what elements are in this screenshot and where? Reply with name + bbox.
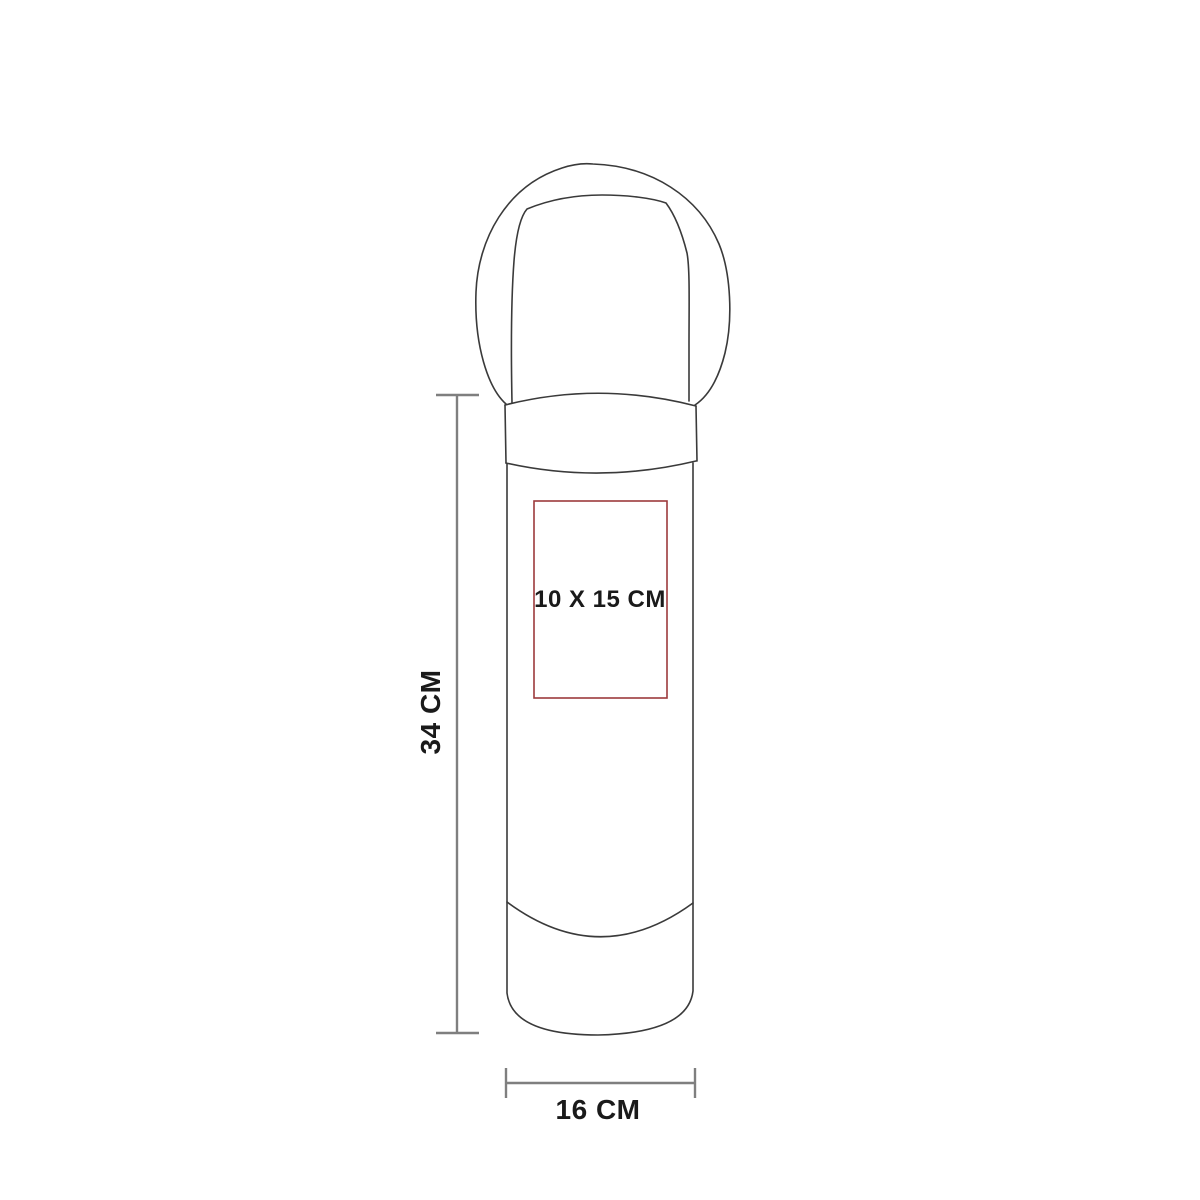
print-area: 10 X 15 CM (534, 501, 667, 698)
handle-inner-outline (511, 195, 689, 403)
handle-outer-outline (476, 164, 730, 405)
body-outline (507, 463, 693, 1035)
collar-band-bottom-edge (506, 461, 696, 473)
collar-band-right-edge (696, 406, 697, 461)
collar-band-top-edge (505, 393, 696, 406)
diagram-svg: 10 X 15 CM 34 CM 16 CM (0, 0, 1200, 1200)
product-dimension-diagram: 10 X 15 CM 34 CM 16 CM (0, 0, 1200, 1200)
width-dimension: 16 CM (506, 1068, 695, 1125)
base-seam-line (507, 902, 693, 937)
width-dimension-label: 16 CM (556, 1094, 641, 1125)
height-dimension-label: 34 CM (415, 670, 446, 755)
height-dimension: 34 CM (415, 395, 479, 1033)
print-area-label: 10 X 15 CM (534, 586, 666, 613)
collar-band-left-edge (505, 405, 506, 463)
